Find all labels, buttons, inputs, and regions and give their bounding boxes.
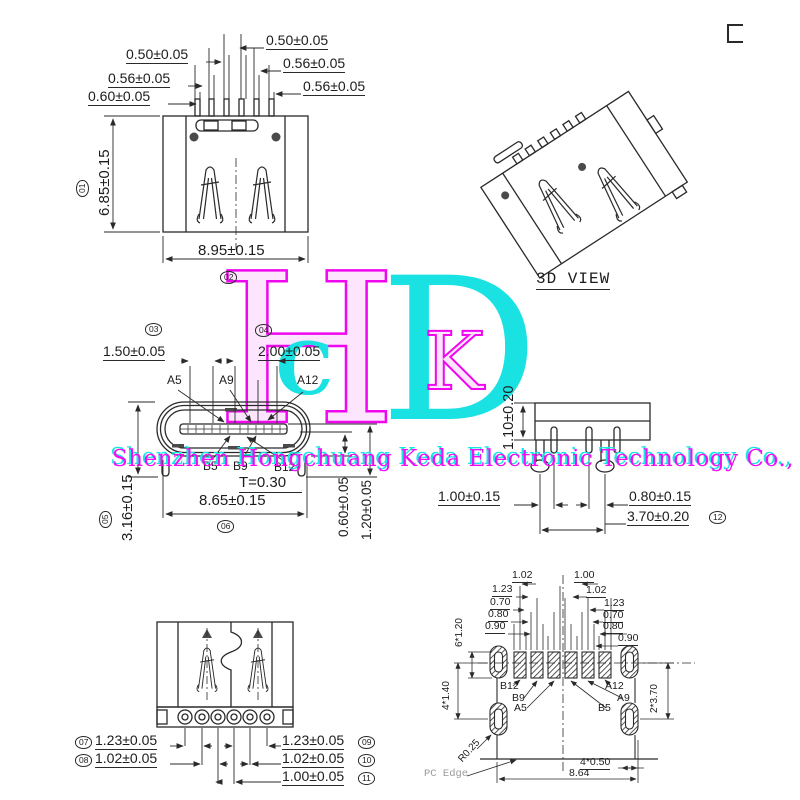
dim-tongue-thickness: T=0.30 [239, 475, 302, 493]
dim-front-width-right1: 0.56±0.05 [283, 56, 345, 73]
company-watermark: Shenzhen Hongchuang Keda Electronic Tech… [112, 446, 800, 472]
bottom-view-dims [170, 728, 281, 784]
dim-section-width: 8.65±0.15 [199, 493, 266, 509]
fp-pin-b5: B5 [598, 703, 611, 714]
dim-side-left: 1.00±0.15 [438, 489, 500, 506]
fp-pin-a9: A9 [617, 693, 630, 704]
view-3d-label: 3D VIEW [536, 271, 610, 290]
dim-front-width-right2: 0.56±0.05 [303, 79, 365, 96]
dim-side-right: 0.80±0.15 [629, 489, 691, 506]
pin-label-a12: A12 [297, 374, 318, 387]
dim-front-pitch-left: 0.50±0.05 [126, 47, 188, 64]
dim-front-width-left2: 0.60±0.05 [88, 89, 150, 106]
balloon-04: 04 [255, 324, 272, 337]
dim-front-width-left1: 0.56±0.05 [108, 71, 170, 88]
dim-fp-pad-pitch: 6*1.20 [455, 618, 466, 647]
view-3d-art [471, 72, 698, 285]
dim-fp-row1-left: 1.02 [512, 570, 532, 583]
fp-pcb-edge-label: PC Edge [424, 769, 468, 780]
balloon-07: 07 [75, 736, 92, 749]
balloon-02: 02 [220, 271, 237, 284]
footprint-dims [454, 584, 674, 783]
dim-fp-hole-span: 2*3.70 [650, 684, 661, 713]
dim-front-pitch-right: 0.50±0.05 [266, 33, 328, 50]
dim-section-step1: 0.60±0.05 [337, 477, 351, 537]
balloon-11: 11 [358, 772, 375, 785]
dim-fp-row1-right: 1.00 [574, 570, 594, 583]
dim-fp-width: 8.64 [569, 768, 589, 779]
front-view-dims [104, 34, 308, 263]
balloon-10: 10 [358, 754, 375, 767]
dim-side-height: 1.10±0.20 [502, 386, 517, 450]
balloon-01: 01 [76, 180, 89, 197]
pin-label-a9: A9 [219, 374, 234, 387]
fp-pin-a12: A12 [605, 681, 624, 692]
balloon-08: 08 [75, 754, 92, 767]
balloon-06: 06 [217, 520, 234, 533]
front-view-art [163, 99, 308, 250]
bottom-view-art [157, 622, 293, 727]
dim-bottom-r1: 1.23±0.05 [282, 733, 344, 750]
dim-bottom-l1: 1.23±0.05 [95, 733, 157, 750]
dim-bottom-l2: 1.02±0.05 [95, 751, 157, 768]
fp-pin-a5: A5 [514, 703, 527, 714]
fp-pin-b12: B12 [500, 681, 519, 692]
balloon-12: 12 [709, 511, 726, 524]
dim-section-right: 2.00±0.05 [258, 344, 320, 361]
balloon-09: 09 [358, 736, 375, 749]
dim-fp-row5-left: 0.90 [485, 621, 505, 634]
dim-front-height: 6.85±0.15 [97, 149, 113, 216]
dim-fp-row6-right: 0.90 [618, 633, 638, 646]
pin-label-a5: A5 [167, 374, 182, 387]
balloon-05: 05 [99, 511, 112, 528]
dim-section-step2: 1.20±0.05 [360, 480, 374, 540]
dim-fp-hole-pitch: 4*1.40 [442, 681, 453, 710]
corner-mark [728, 25, 743, 42]
drawing-canvas [0, 0, 800, 800]
dim-side-span: 3.70±0.20 [627, 509, 689, 526]
balloon-03: 03 [145, 323, 162, 336]
dim-section-left: 1.50±0.05 [103, 344, 165, 361]
dim-bottom-r2: 1.02±0.05 [282, 751, 344, 768]
footprint-art [478, 575, 695, 772]
technical-drawing: H D C K [0, 0, 800, 800]
dim-section-height: 3.16±0.15 [120, 474, 136, 541]
dim-front-width: 8.95±0.15 [198, 243, 265, 259]
dim-bottom-r3: 1.00±0.05 [282, 769, 344, 786]
